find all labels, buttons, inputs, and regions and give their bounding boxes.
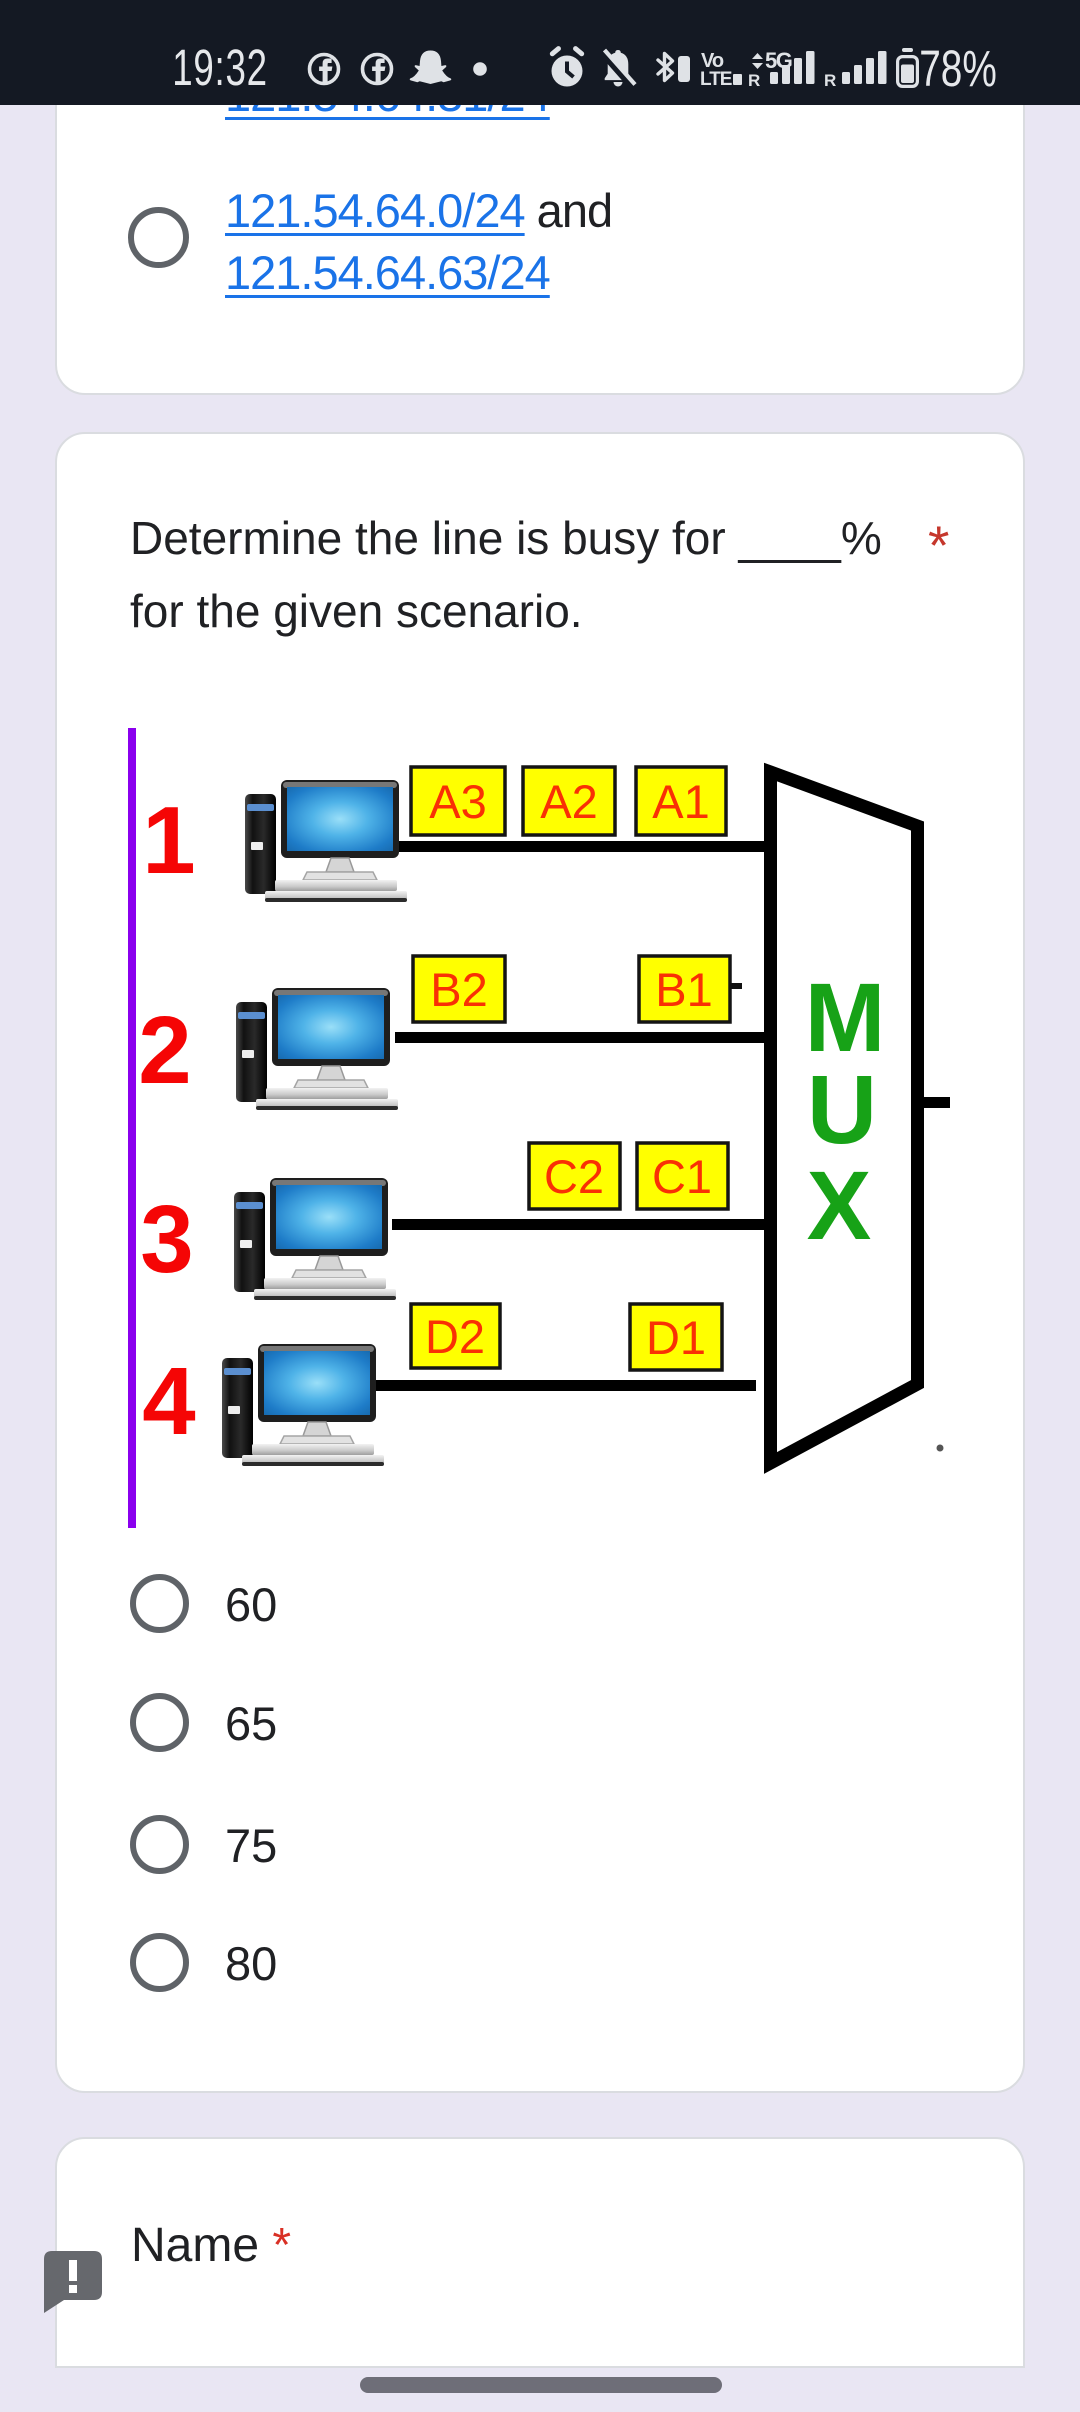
- svg-text:R: R: [824, 71, 836, 90]
- svg-text:78%: 78%: [919, 40, 997, 97]
- svg-text:A2: A2: [540, 775, 598, 828]
- svg-text:3: 3: [140, 1186, 193, 1293]
- svg-text:D1: D1: [646, 1311, 706, 1364]
- svg-text:B2: B2: [430, 963, 488, 1016]
- svg-text:A3: A3: [429, 775, 487, 828]
- svg-text:B1: B1: [655, 963, 713, 1016]
- svg-text:4: 4: [142, 1348, 195, 1455]
- svg-text:R: R: [748, 71, 760, 90]
- svg-text:U: U: [807, 1055, 877, 1164]
- svg-text:D2: D2: [425, 1310, 485, 1363]
- svg-text:C1: C1: [652, 1150, 712, 1203]
- svg-text:A1: A1: [652, 775, 710, 828]
- svg-text:1: 1: [142, 787, 195, 894]
- svg-text:LTE: LTE: [700, 69, 732, 90]
- svg-text:2: 2: [138, 997, 191, 1104]
- svg-text:19:32: 19:32: [172, 40, 267, 96]
- svg-text:C2: C2: [544, 1150, 604, 1203]
- svg-text:X: X: [807, 1151, 872, 1260]
